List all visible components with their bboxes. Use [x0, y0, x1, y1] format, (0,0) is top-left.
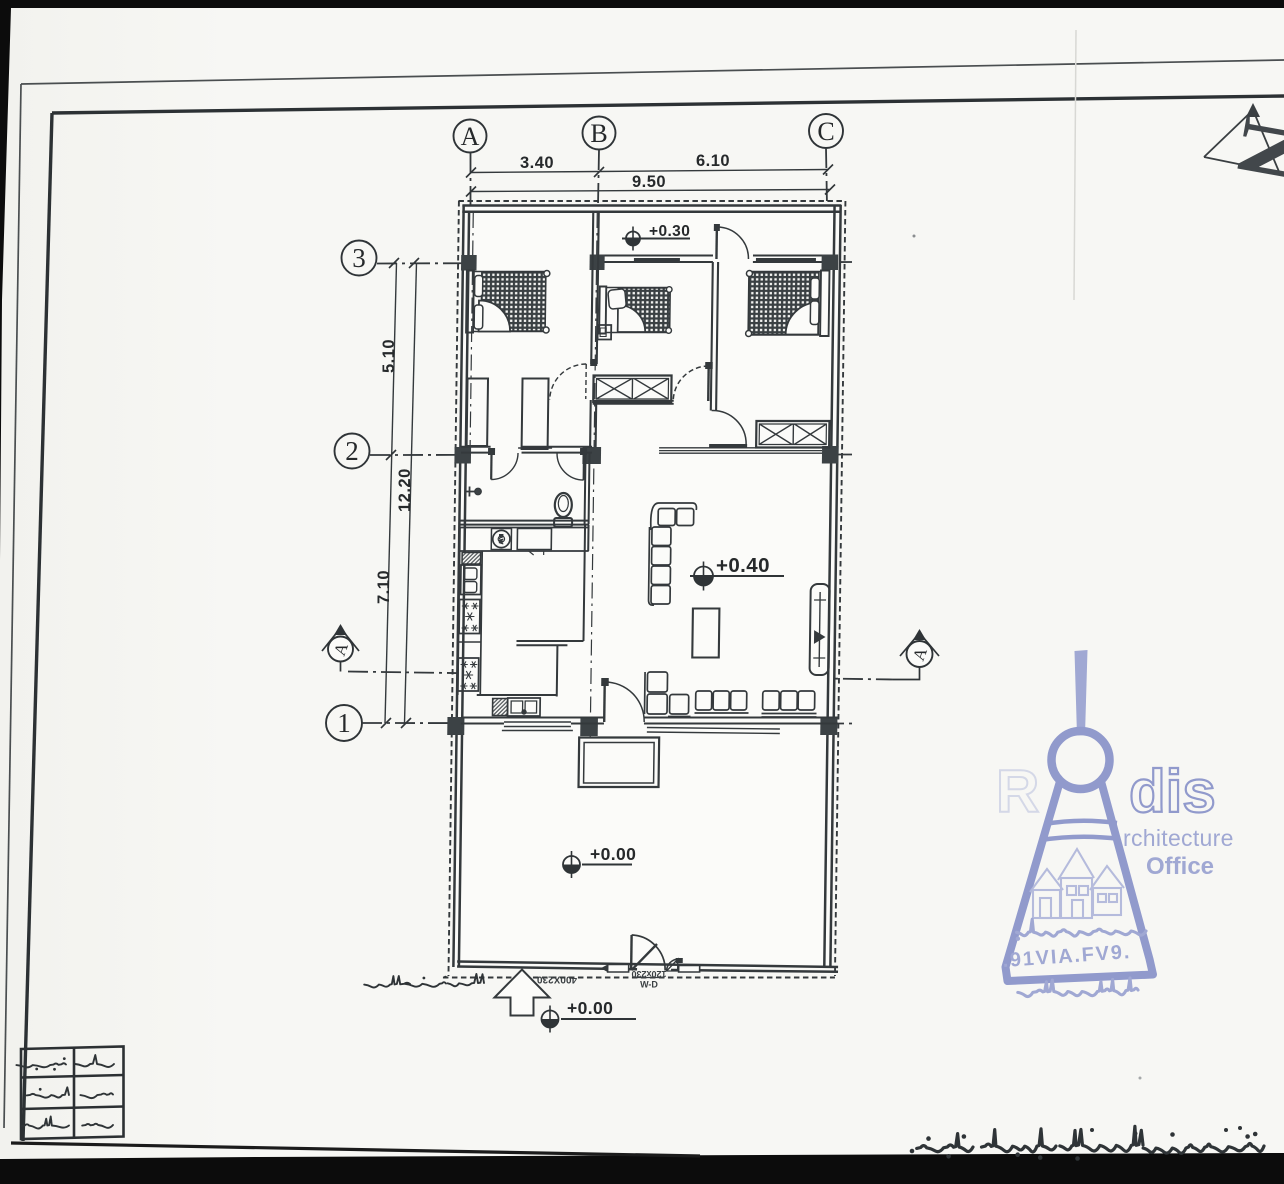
svg-text:2: 2 [345, 436, 359, 466]
svg-text:rchitecture: rchitecture [1123, 825, 1234, 851]
svg-text:dis: dis [1129, 758, 1216, 825]
svg-text:B: B [590, 119, 607, 148]
svg-text:3.40: 3.40 [520, 154, 554, 172]
svg-text:+0.30: +0.30 [649, 223, 690, 240]
svg-text:+0.00: +0.00 [567, 998, 613, 1018]
svg-text:+0.00: +0.00 [590, 844, 636, 864]
svg-text:D.W: D.W [497, 534, 503, 544]
svg-text:5.10: 5.10 [380, 339, 398, 373]
svg-text:A: A [461, 122, 480, 151]
svg-text:R: R [996, 758, 1039, 825]
svg-text:400X230: 400X230 [537, 974, 577, 985]
svg-text:7.10: 7.10 [375, 570, 393, 604]
svg-text:1: 1 [337, 708, 351, 738]
svg-text:3: 3 [352, 243, 366, 273]
svg-text:12.20: 12.20 [396, 468, 414, 512]
svg-text:+0.40: +0.40 [716, 554, 770, 577]
svg-text:C: C [817, 117, 834, 146]
svg-text:W-D: W-D [640, 980, 658, 990]
svg-text:9.50: 9.50 [632, 173, 666, 191]
svg-text:6.10: 6.10 [696, 152, 730, 170]
svg-text:Office: Office [1146, 853, 1214, 880]
